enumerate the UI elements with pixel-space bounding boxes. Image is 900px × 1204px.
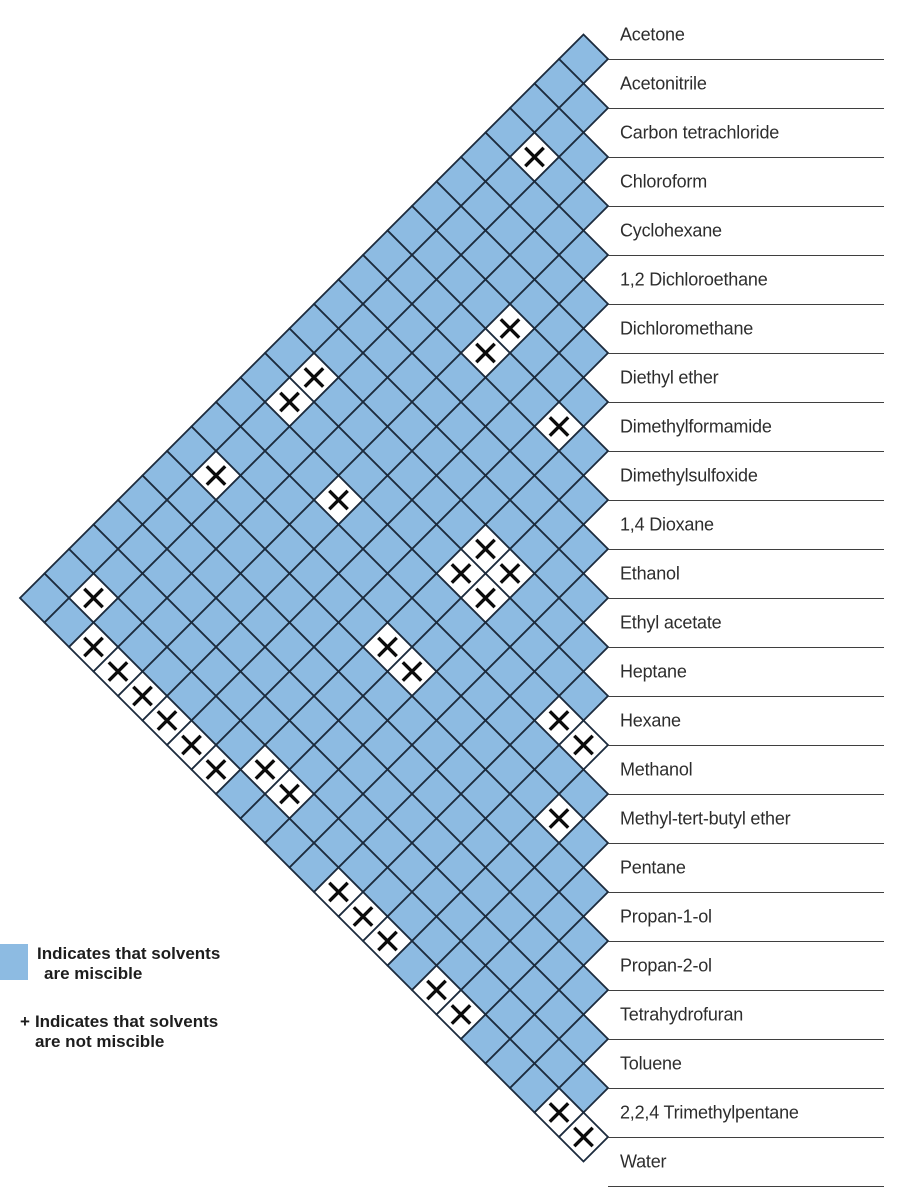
row-separator-line (608, 1186, 884, 1187)
solvent-label-dichloromethane: Dichloromethane (620, 318, 753, 339)
solvent-label-acetone: Acetone (620, 24, 685, 45)
row-separator-line (608, 794, 884, 795)
solvent-label-ethanol: Ethanol (620, 563, 680, 584)
solvent-label-hexane: Hexane (620, 710, 681, 731)
solvent-label-toluene: Toluene (620, 1053, 682, 1074)
legend-not-miscible-line1: Indicates that solvents (35, 1012, 218, 1032)
row-separator-line (608, 1137, 884, 1138)
solvent-label-heptane: Heptane (620, 661, 687, 682)
solvent-label-chloroform: Chloroform (620, 171, 707, 192)
legend-miscible-line2: are miscible (37, 964, 220, 984)
row-separator-line (608, 157, 884, 158)
row-separator-line (608, 745, 884, 746)
solvent-label-pentane: Pentane (620, 857, 686, 878)
row-separator-line (608, 402, 884, 403)
row-separator-line (608, 990, 884, 991)
solvent-label-water: Water (620, 1151, 666, 1172)
solvent-label-carbon-tetrachloride: Carbon tetrachloride (620, 122, 779, 143)
row-separator-line (608, 843, 884, 844)
row-separator-line (608, 647, 884, 648)
solvent-label-1-4-dioxane: 1,4 Dioxane (620, 514, 714, 535)
row-separator-line (608, 451, 884, 452)
row-separator-line (608, 549, 884, 550)
solvent-label-tetrahydrofuran: Tetrahydrofuran (620, 1004, 743, 1025)
row-separator-line (608, 353, 884, 354)
solvent-label-diethyl-ether: Diethyl ether (620, 367, 718, 388)
row-separator-line (608, 1088, 884, 1089)
solvent-label-methyl-tert-butyl-ether: Methyl-tert-butyl ether (620, 808, 790, 829)
row-separator-line (608, 1039, 884, 1040)
legend-miscible-line1: Indicates that solvents (37, 944, 220, 964)
miscible-swatch-icon (0, 944, 28, 980)
row-separator-line (608, 500, 884, 501)
legend-not-miscible-line2: are not miscible (35, 1032, 218, 1052)
row-separator-line (608, 108, 884, 109)
plus-icon: + (20, 1012, 30, 1032)
solvent-label-propan-2-ol: Propan-2-ol (620, 955, 712, 976)
solvent-label-acetonitrile: Acetonitrile (620, 73, 707, 94)
legend-not-miscible: + Indicates that solvents are not miscib… (20, 1012, 218, 1052)
legend-miscible: Indicates that solvents are miscible (0, 944, 220, 984)
row-separator-line (608, 598, 884, 599)
row-separator-line (608, 696, 884, 697)
solvent-label-methanol: Methanol (620, 759, 692, 780)
row-separator-line (608, 941, 884, 942)
row-separator-line (608, 206, 884, 207)
solvent-label-dimethylsulfoxide: Dimethylsulfoxide (620, 465, 758, 486)
row-separator-line (608, 255, 884, 256)
solvent-label-dimethylformamide: Dimethylformamide (620, 416, 772, 437)
row-separator-line (608, 59, 884, 60)
solvent-label-2-2-4-trimethylpentane: 2,2,4 Trimethylpentane (620, 1102, 799, 1123)
solvent-miscibility-chart: AcetoneAcetonitrileCarbon tetrachlorideC… (0, 0, 900, 1204)
solvent-label-1-2-dichloroethane: 1,2 Dichloroethane (620, 269, 768, 290)
row-separator-line (608, 892, 884, 893)
row-separator-line (608, 304, 884, 305)
solvent-label-cyclohexane: Cyclohexane (620, 220, 722, 241)
solvent-label-propan-1-ol: Propan-1-ol (620, 906, 712, 927)
solvent-label-ethyl-acetate: Ethyl acetate (620, 612, 721, 633)
